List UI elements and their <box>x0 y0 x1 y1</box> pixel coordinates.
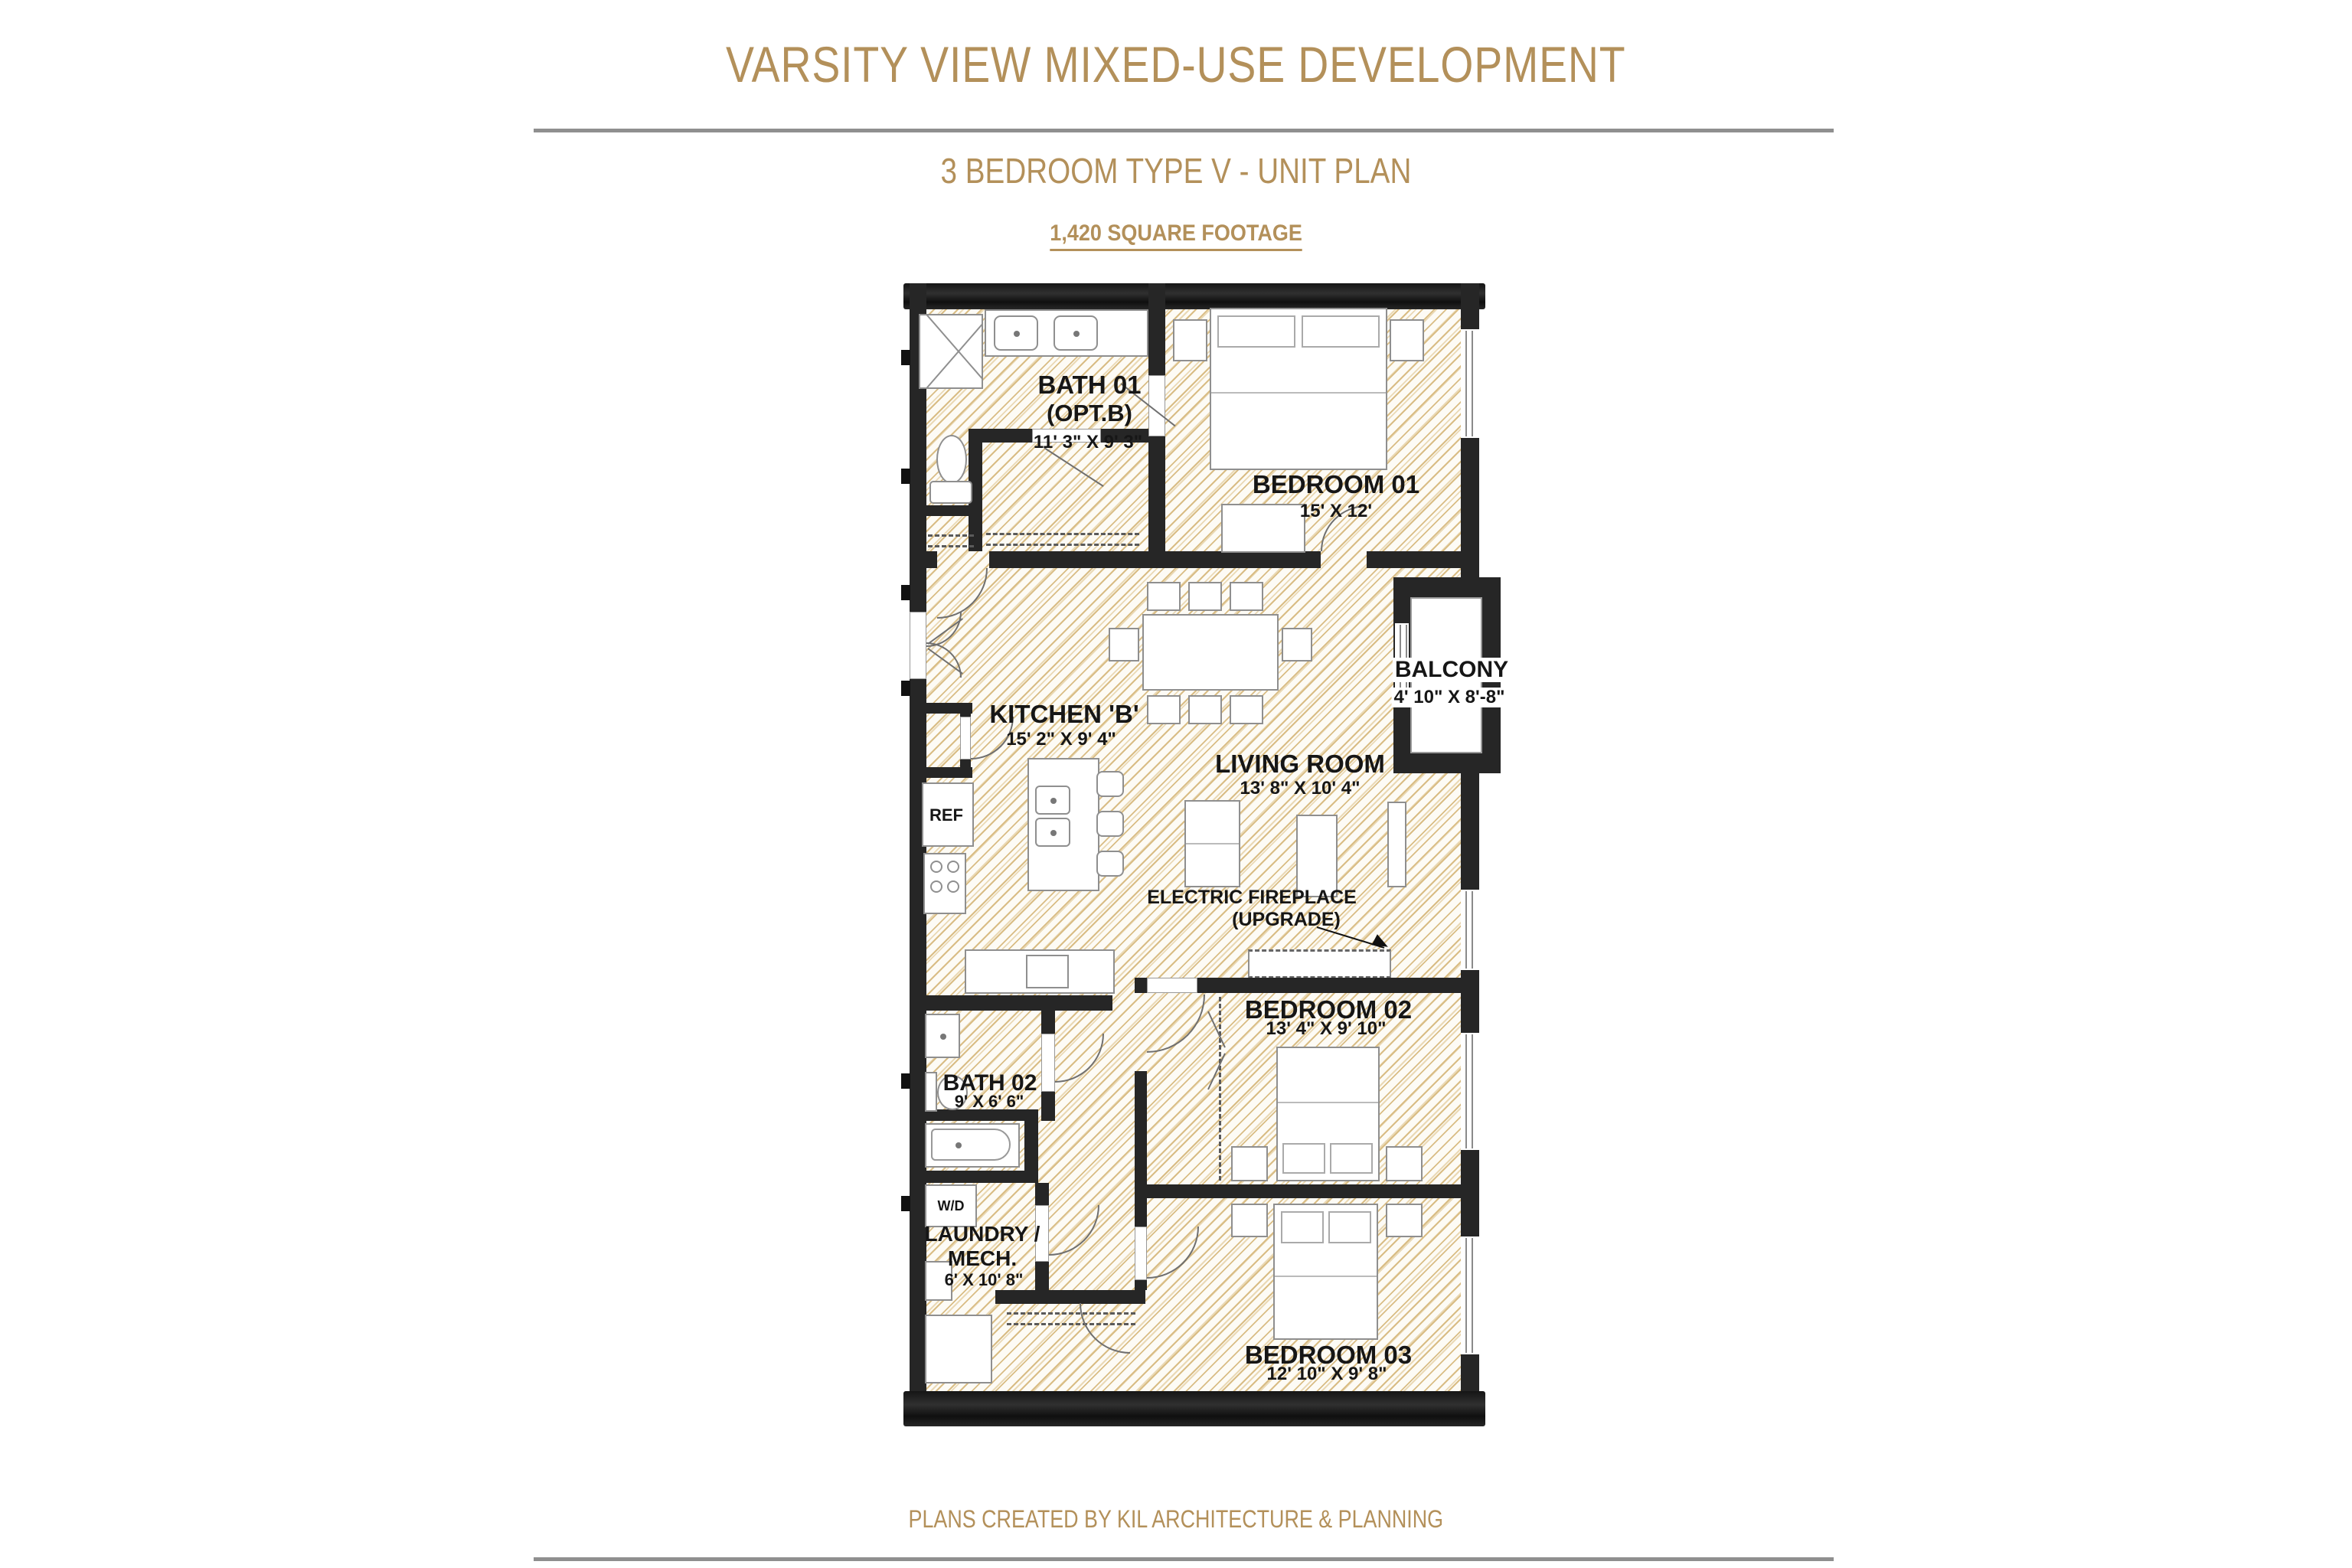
closet-rod-dashed <box>986 544 1139 546</box>
toilet-tank <box>929 481 972 504</box>
pillow <box>1281 1211 1324 1243</box>
room-label-laundry: LAUNDRY / <box>925 1223 1040 1245</box>
toilet-icon <box>936 435 967 484</box>
dining-chair <box>1282 628 1312 661</box>
wall-exterior-top <box>903 283 1485 309</box>
footer-divider <box>534 1557 1834 1561</box>
fireplace-annotation-line1: ELECTRIC FIREPLACE <box>1147 888 1357 907</box>
wall-bath02-tub <box>925 1109 1024 1121</box>
pillow <box>1302 315 1380 348</box>
room-dims-balcony: 4' 10" X 8'-8" <box>1392 688 1508 707</box>
bed-bedroom01 <box>1210 308 1387 470</box>
dishwasher-icon <box>1026 955 1069 988</box>
floor-plan-sheet: VARSITY VIEW MIXED-USE DEVELOPMENT 3 BED… <box>0 0 2352 1568</box>
room-dims-living: 13' 8" X 10' 4" <box>1240 779 1361 798</box>
stool <box>1096 771 1124 797</box>
dining-chair <box>1147 582 1181 611</box>
sink-icon <box>1053 315 1098 351</box>
wall-laundry-top <box>925 1171 1038 1183</box>
pillow <box>1330 1143 1373 1174</box>
nightstand <box>1386 1204 1423 1237</box>
window-living <box>1461 890 1479 970</box>
room-dims-laundry: 6' X 10' 8" <box>945 1272 1024 1289</box>
bed-bedroom03 <box>1273 1204 1378 1340</box>
pantry-door-jamb <box>960 717 971 759</box>
room-dims-bedroom02: 13' 4" X 9' 10" <box>1266 1020 1387 1038</box>
burner <box>947 861 959 873</box>
wd-label: W/D <box>938 1199 965 1213</box>
sink-basin <box>1035 786 1070 815</box>
media-console <box>1387 802 1406 887</box>
armchair <box>1296 815 1338 897</box>
wall-bedroom02-bedroom03 <box>1135 1184 1479 1198</box>
loveseat <box>1184 800 1240 887</box>
wall-tick <box>901 1196 910 1211</box>
pillow <box>1282 1143 1325 1174</box>
ref-label: REF <box>929 807 963 824</box>
entry-door-jamb <box>910 612 926 679</box>
wall-balcony-bottom <box>1393 753 1501 773</box>
nightstand <box>1173 319 1207 361</box>
room-dims-bath02: 9' X 6' 6" <box>955 1093 1024 1110</box>
dining-chair <box>1230 582 1263 611</box>
tub-basin <box>931 1129 1011 1161</box>
bed-bedroom02 <box>1276 1047 1380 1181</box>
wall-kitchen-bath02 <box>925 995 1112 1011</box>
dining-chair <box>1188 695 1222 724</box>
wall-pantry-bottom <box>925 767 972 778</box>
wall-toilet-nook <box>925 505 969 516</box>
dining-chair <box>1188 582 1222 611</box>
wall-tick <box>901 585 910 600</box>
window-bedroom02 <box>1461 1033 1479 1150</box>
fireplace-annotation-line2: (UPGRADE) <box>1232 910 1341 929</box>
dining-table <box>1142 614 1279 691</box>
wall-tick <box>901 1073 910 1089</box>
vanity-double-sink <box>985 309 1148 357</box>
floor-plan: REF <box>903 277 1516 1433</box>
room-label-laundry-2: MECH. <box>948 1248 1017 1269</box>
window-bedroom01 <box>1461 329 1479 438</box>
shower-icon <box>919 314 983 389</box>
dining-chair <box>1147 695 1181 724</box>
window-bedroom03 <box>1461 1236 1479 1354</box>
wall-tick <box>901 681 910 696</box>
burner <box>930 880 942 893</box>
room-dims-kitchen: 15' 2" X 9' 4" <box>1006 730 1116 749</box>
closet-dashed-line <box>1219 997 1221 1181</box>
room-label-balcony: BALCONY <box>1393 658 1511 682</box>
wall-bath01-kitchen <box>989 551 1321 568</box>
wall-tick <box>901 469 910 484</box>
burner <box>947 880 959 893</box>
wall-exterior-bottom <box>903 1391 1485 1426</box>
unit-plan-subtitle: 3 BEDROOM TYPE V - UNIT PLAN <box>0 150 2352 191</box>
bathtub-icon <box>925 1123 1020 1168</box>
nightstand <box>1231 1146 1268 1181</box>
blanket-line <box>1211 392 1386 394</box>
wall-tick <box>901 350 910 365</box>
wall-bedroom01-living <box>1367 551 1479 568</box>
stove-icon <box>923 853 966 914</box>
room-dims-bedroom01: 15' X 12' <box>1300 502 1372 521</box>
wall-hall-segment <box>925 551 937 568</box>
burner <box>930 861 942 873</box>
bath02-door-jamb <box>1041 1034 1055 1092</box>
room-dims-bath01: 11' 3" X 9' 3" <box>1034 433 1142 452</box>
cabinet <box>925 1315 992 1383</box>
sink-icon <box>925 1014 960 1058</box>
header-divider <box>534 129 1834 132</box>
nightstand <box>1390 319 1424 361</box>
page-title: VARSITY VIEW MIXED-USE DEVELOPMENT <box>0 35 2352 93</box>
nightstand <box>1231 1204 1268 1237</box>
dresser <box>1221 504 1305 553</box>
sink-basin <box>1035 818 1070 847</box>
stool <box>1096 851 1124 877</box>
room-label-kitchen: KITCHEN 'B' <box>989 701 1138 727</box>
square-footage: 1,420 SQUARE FOOTAGE <box>0 220 2352 251</box>
bedroom02-door-jamb <box>1147 978 1197 993</box>
bedroom03-door-jamb <box>1135 1227 1147 1280</box>
room-dims-bedroom03: 12' 10" X 9' 8" <box>1267 1365 1387 1383</box>
pillow <box>1328 1211 1371 1243</box>
room-label-bath01: BATH 01 <box>1037 372 1141 397</box>
kitchen-island <box>1027 758 1099 891</box>
dining-chair <box>1109 628 1139 661</box>
closet-rod-dashed <box>986 533 1139 535</box>
room-label-living: LIVING ROOM <box>1215 751 1385 776</box>
wall-closet3-top <box>995 1290 1145 1304</box>
vanity-dashed <box>928 545 974 547</box>
room-label-bedroom01: BEDROOM 01 <box>1253 472 1419 497</box>
sink-icon <box>994 315 1038 351</box>
pillow <box>1217 315 1295 348</box>
electric-fireplace <box>1248 949 1391 978</box>
toilet-tank <box>925 1072 937 1112</box>
plans-credit: PLANS CREATED BY KIL ARCHITECTURE & PLAN… <box>0 1505 2352 1534</box>
stool <box>1096 811 1124 837</box>
blanket-line <box>1278 1102 1378 1103</box>
room-label-bath01-variant: (OPT.B) <box>1047 401 1132 425</box>
dining-chair <box>1230 695 1263 724</box>
blanket-line <box>1275 1276 1377 1277</box>
vanity-dashed <box>928 534 974 537</box>
kitchen-counter <box>965 949 1115 994</box>
nightstand <box>1386 1146 1423 1181</box>
cushion-line <box>1186 843 1239 844</box>
